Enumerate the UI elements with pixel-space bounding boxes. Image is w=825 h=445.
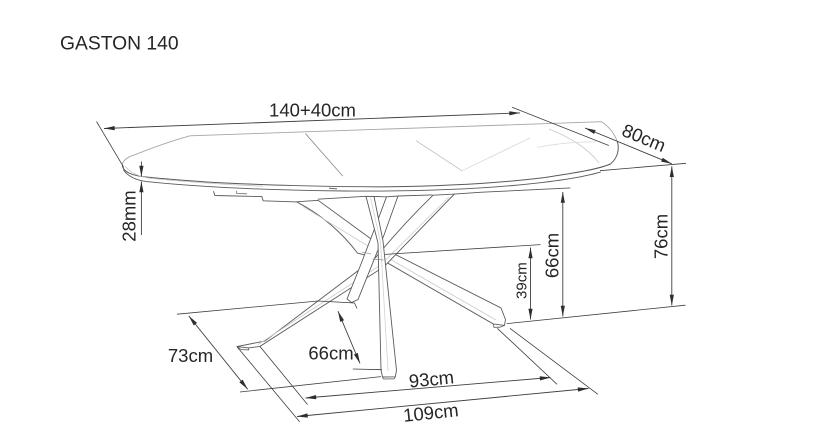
svg-text:66cm: 66cm	[308, 343, 353, 364]
svg-text:73cm: 73cm	[168, 345, 213, 366]
svg-text:66cm: 66cm	[542, 233, 563, 278]
svg-text:80cm: 80cm	[619, 119, 669, 156]
svg-text:140+40cm: 140+40cm	[269, 100, 356, 121]
svg-text:109cm: 109cm	[402, 399, 459, 426]
svg-text:76cm: 76cm	[651, 214, 672, 259]
svg-text:GASTON 140: GASTON 140	[60, 34, 179, 55]
svg-text:28mm: 28mm	[119, 190, 140, 241]
svg-text:39cm: 39cm	[514, 262, 531, 299]
svg-text:93cm: 93cm	[408, 366, 455, 391]
